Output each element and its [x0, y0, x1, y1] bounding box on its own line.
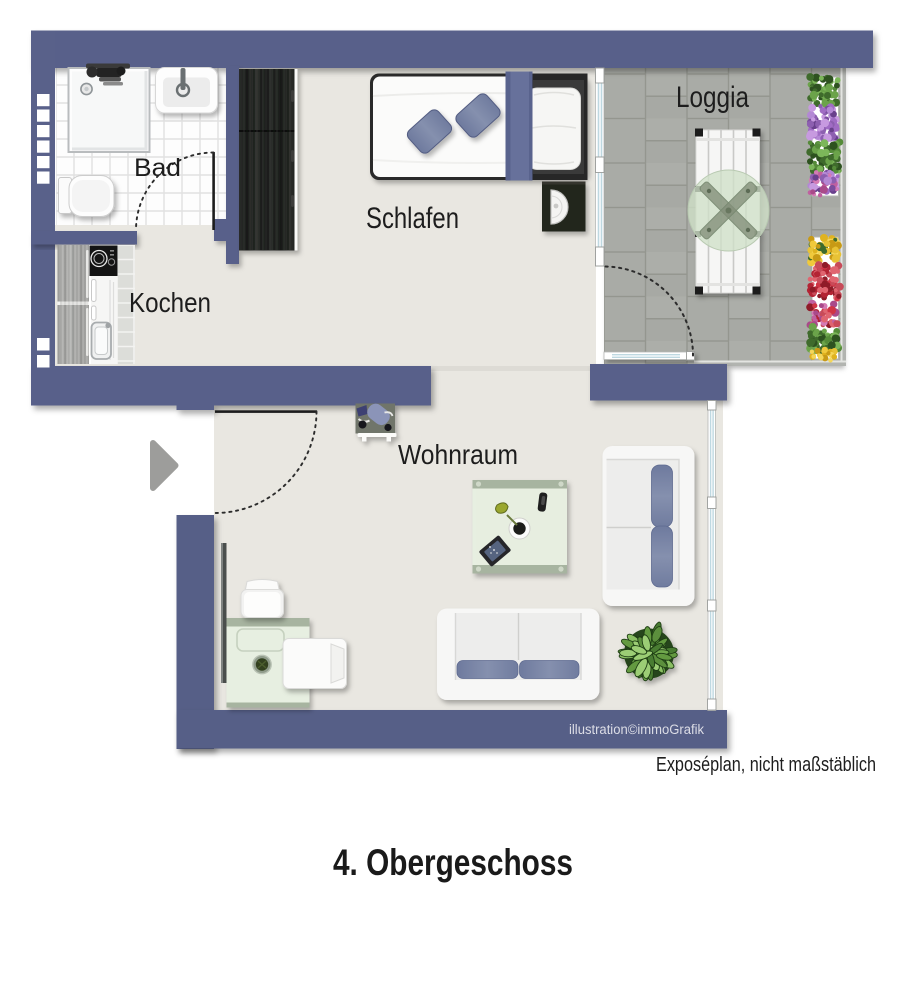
svg-text:4. Obergeschoss: 4. Obergeschoss — [333, 842, 573, 883]
svg-text:illustration©immoGrafik: illustration©immoGrafik — [569, 722, 704, 737]
svg-text:Loggia: Loggia — [676, 81, 749, 114]
svg-text:Kochen: Kochen — [129, 287, 211, 318]
svg-text:Exposéplan, nicht maßstäblich: Exposéplan, nicht maßstäblich — [656, 754, 876, 776]
svg-text:Wohnraum: Wohnraum — [398, 439, 518, 470]
svg-text:Bad: Bad — [134, 154, 181, 182]
svg-text:Schlafen: Schlafen — [366, 202, 459, 235]
